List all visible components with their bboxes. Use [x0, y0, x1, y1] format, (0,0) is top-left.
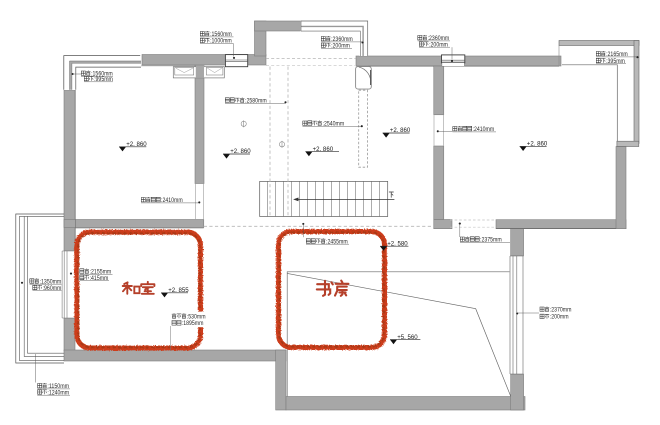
svg-text::2370mm: :2370mm — [550, 308, 572, 314]
svg-text::200mm: :200mm — [550, 315, 569, 321]
svg-text::1895mm: :1895mm — [182, 321, 204, 327]
svg-text::530mm: :530mm — [187, 314, 206, 320]
